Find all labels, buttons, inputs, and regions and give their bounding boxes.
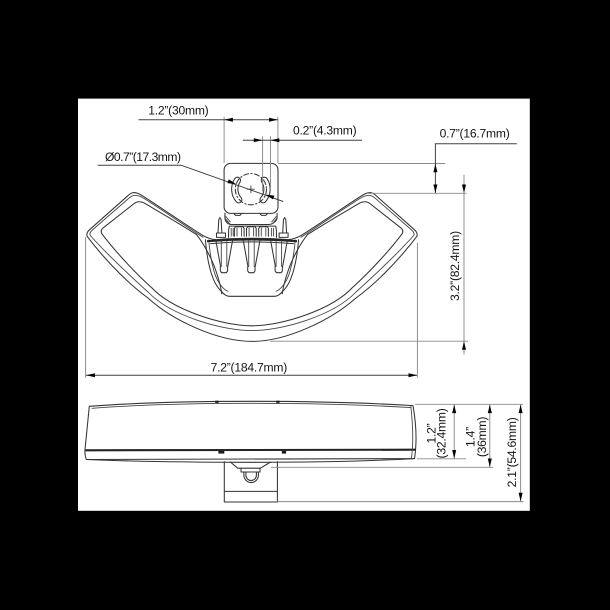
svg-text:3.2”(82.4mm): 3.2”(82.4mm) [448, 231, 462, 301]
svg-text:7.2”(184.7mm): 7.2”(184.7mm) [211, 360, 288, 374]
svg-text:(32.4mm): (32.4mm) [435, 408, 449, 458]
svg-text:0.2”(4.3mm): 0.2”(4.3mm) [293, 123, 357, 137]
svg-text:Ø0.7”(17.3mm): Ø0.7”(17.3mm) [105, 150, 181, 164]
svg-text:(36mm): (36mm) [475, 417, 489, 458]
svg-text:2.1”(54.6mm): 2.1”(54.6mm) [505, 417, 519, 487]
svg-text:1.2”(30mm): 1.2”(30mm) [148, 104, 208, 118]
svg-text:0.7”(16.7mm): 0.7”(16.7mm) [440, 126, 510, 140]
